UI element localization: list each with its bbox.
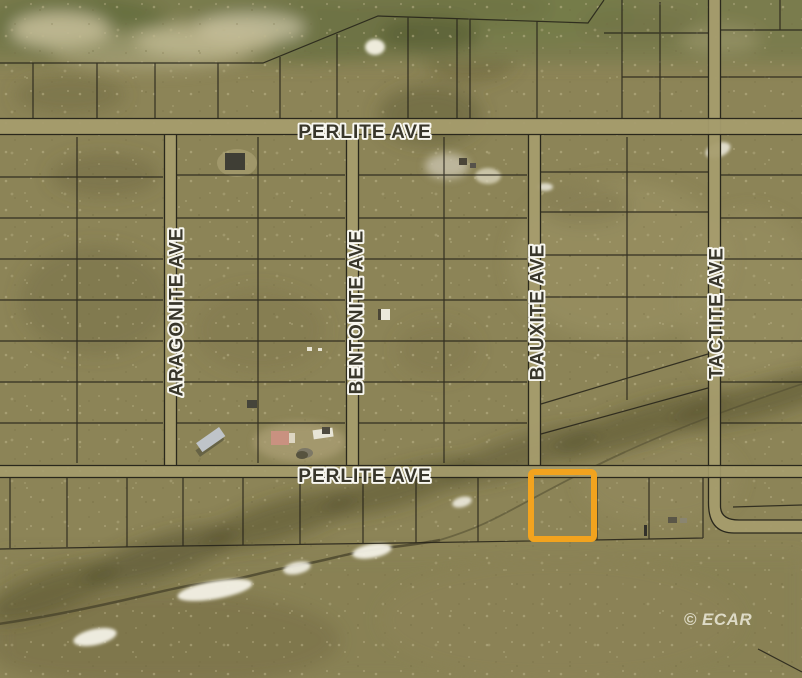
- street-label-perlite-ave-bottom: PERLITE AVE: [298, 466, 431, 487]
- street-label-bentonite-ave: BENTONITE AVE: [347, 230, 368, 395]
- building-white-shed: [381, 309, 390, 320]
- watermark-ecar: © ECAR: [684, 610, 753, 629]
- street-label-aragonite-ave: ARAGONITE AVE: [167, 227, 188, 396]
- street-label-bauxite-ave: BAUXITE AVE: [528, 244, 549, 381]
- building-dark-roof: [225, 153, 245, 170]
- aerial-parcel-map: PERLITE AVE ARAGONITE AVE BENTONITE AVE …: [0, 0, 802, 678]
- street-label-tactite-ave: TACTITE AVE: [707, 247, 728, 379]
- building-pink-roof: [271, 431, 289, 445]
- street-label-perlite-ave-top: PERLITE AVE: [298, 122, 431, 143]
